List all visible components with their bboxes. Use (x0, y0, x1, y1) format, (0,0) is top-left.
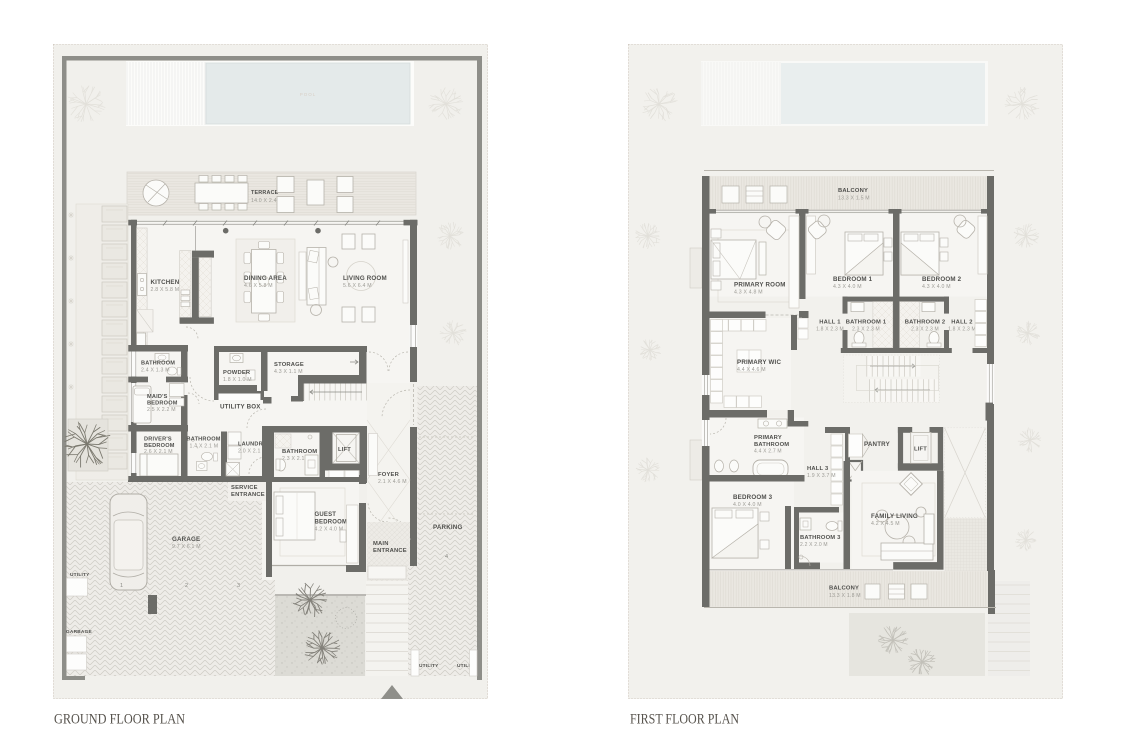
svg-text:1.4 X 2.1 M: 1.4 X 2.1 M (190, 444, 219, 450)
svg-text:1.8 X 2.3 M: 1.8 X 2.3 M (948, 327, 976, 333)
svg-text:HALL 2: HALL 2 (951, 320, 972, 326)
svg-text:4.6 X 5.8 M: 4.6 X 5.8 M (244, 283, 273, 289)
svg-text:4.4 X 4.6 M: 4.4 X 4.6 M (737, 367, 766, 373)
svg-text:2.2 X 2.0 M: 2.2 X 2.0 M (800, 542, 828, 548)
svg-text:BATHROOM: BATHROOM (187, 437, 221, 443)
svg-text:HALL 3: HALL 3 (807, 466, 829, 472)
svg-text:GARBAGE: GARBAGE (66, 629, 93, 635)
svg-text:UTILITY: UTILITY (419, 663, 439, 669)
svg-text:9.7 X 6.1 M: 9.7 X 6.1 M (172, 544, 201, 550)
svg-text:4.3 X 1.1 M: 4.3 X 1.1 M (274, 369, 303, 375)
svg-text:4: 4 (445, 554, 448, 560)
svg-text:MAID'S: MAID'S (147, 394, 168, 400)
svg-text:4.3 X 4.0 M: 4.3 X 4.0 M (833, 284, 862, 290)
svg-text:GARAGE: GARAGE (172, 536, 200, 543)
svg-text:2.6 X 2.1 M: 2.6 X 2.1 M (144, 449, 173, 455)
svg-text:DINING AREA: DINING AREA (244, 275, 287, 282)
svg-text:BALCONY: BALCONY (829, 586, 859, 592)
svg-text:2: 2 (185, 583, 188, 589)
svg-text:13.3 X 1.8 M: 13.3 X 1.8 M (829, 593, 861, 599)
svg-text:1: 1 (120, 583, 123, 589)
svg-text:ENTRANCE: ENTRANCE (231, 492, 265, 498)
svg-text:BEDROOM: BEDROOM (147, 401, 178, 407)
svg-text:HALL 1: HALL 1 (819, 320, 841, 326)
svg-text:2.3 X 2.1: 2.3 X 2.1 (282, 456, 305, 462)
svg-text:BATHROOM 1: BATHROOM 1 (846, 320, 887, 326)
svg-text:2.3 X 2.3 M: 2.3 X 2.3 M (911, 327, 939, 333)
svg-text:TERRACE: TERRACE (251, 190, 279, 196)
svg-text:LIFT: LIFT (338, 447, 351, 453)
svg-text:BALCONY: BALCONY (838, 188, 868, 194)
svg-text:PRIMARY: PRIMARY (754, 435, 782, 441)
svg-text:LIFT: LIFT (914, 447, 927, 453)
svg-text:PRIMARY WIC: PRIMARY WIC (737, 359, 781, 366)
svg-text:BATHROOM: BATHROOM (141, 361, 175, 367)
svg-text:PARKING: PARKING (433, 524, 462, 531)
svg-text:ENTRANCE: ENTRANCE (373, 548, 407, 554)
svg-text:4.2 X 4.5 M: 4.2 X 4.5 M (871, 521, 900, 527)
svg-text:GROUND FLOOR PLAN: GROUND FLOOR PLAN (54, 712, 185, 728)
svg-text:4.0 X 4.0 M: 4.0 X 4.0 M (733, 502, 762, 508)
svg-text:BEDROOM: BEDROOM (315, 520, 348, 526)
svg-text:4.4 X 2.7 M: 4.4 X 2.7 M (754, 449, 782, 455)
svg-text:MAIN: MAIN (373, 541, 389, 547)
svg-text:KITCHEN: KITCHEN (151, 279, 180, 286)
svg-text:POWDER: POWDER (223, 370, 251, 376)
svg-text:BEDROOM 1: BEDROOM 1 (833, 276, 873, 283)
svg-text:GUEST: GUEST (315, 512, 337, 518)
svg-text:4.2 X 4.0 M: 4.2 X 4.0 M (315, 527, 344, 533)
svg-text:2.5 X 2.2 M: 2.5 X 2.2 M (147, 407, 176, 413)
svg-text:2.8 X 5.8 M: 2.8 X 5.8 M (151, 287, 180, 293)
svg-text:2.3 X 2.3 M: 2.3 X 2.3 M (852, 327, 880, 333)
svg-text:STORAGE: STORAGE (274, 362, 304, 368)
svg-text:4.3 X 4.0 M: 4.3 X 4.0 M (922, 284, 951, 290)
svg-text:BEDROOM: BEDROOM (144, 443, 175, 449)
svg-text:13.3 X 1.5 M: 13.3 X 1.5 M (838, 195, 870, 201)
svg-text:3: 3 (237, 583, 240, 589)
svg-text:PRIMARY ROOM: PRIMARY ROOM (734, 282, 786, 289)
svg-text:1.9 X 3.7 M: 1.9 X 3.7 M (807, 473, 836, 479)
svg-text:DRIVER'S: DRIVER'S (144, 437, 172, 443)
svg-text:PANTRY: PANTRY (864, 441, 891, 448)
svg-text:4.3 X 4.8 M: 4.3 X 4.8 M (734, 290, 763, 296)
svg-text:1.8 X 2.3 M: 1.8 X 2.3 M (816, 327, 844, 333)
svg-text:UTILITY: UTILITY (70, 572, 90, 578)
svg-text:BATHROOM: BATHROOM (282, 449, 317, 455)
svg-text:BEDROOM 3: BEDROOM 3 (733, 494, 773, 501)
svg-text:UTILITY BOX: UTILITY BOX (220, 404, 261, 411)
svg-text:BATHROOM 3: BATHROOM 3 (800, 535, 841, 541)
svg-text:5.6 X 6.4 M: 5.6 X 6.4 M (343, 283, 372, 289)
svg-text:POOL: POOL (300, 92, 317, 97)
svg-text:FOYER: FOYER (378, 472, 400, 478)
svg-text:BEDROOM 2: BEDROOM 2 (922, 276, 962, 283)
svg-text:BATHROOM: BATHROOM (754, 442, 789, 448)
svg-text:FIRST FLOOR PLAN: FIRST FLOOR PLAN (630, 712, 739, 728)
svg-text:FAMILY LIVING: FAMILY LIVING (871, 513, 918, 520)
svg-text:2.4 X 1.3 M: 2.4 X 1.3 M (141, 368, 170, 374)
svg-text:LIVING ROOM: LIVING ROOM (343, 275, 387, 282)
svg-text:2.1 X 4.6 M: 2.1 X 4.6 M (378, 479, 407, 485)
svg-text:SERVICE: SERVICE (231, 485, 258, 491)
svg-text:BATHROOM 2: BATHROOM 2 (905, 320, 946, 326)
svg-text:1.8 X 1.0 M: 1.8 X 1.0 M (223, 377, 252, 383)
